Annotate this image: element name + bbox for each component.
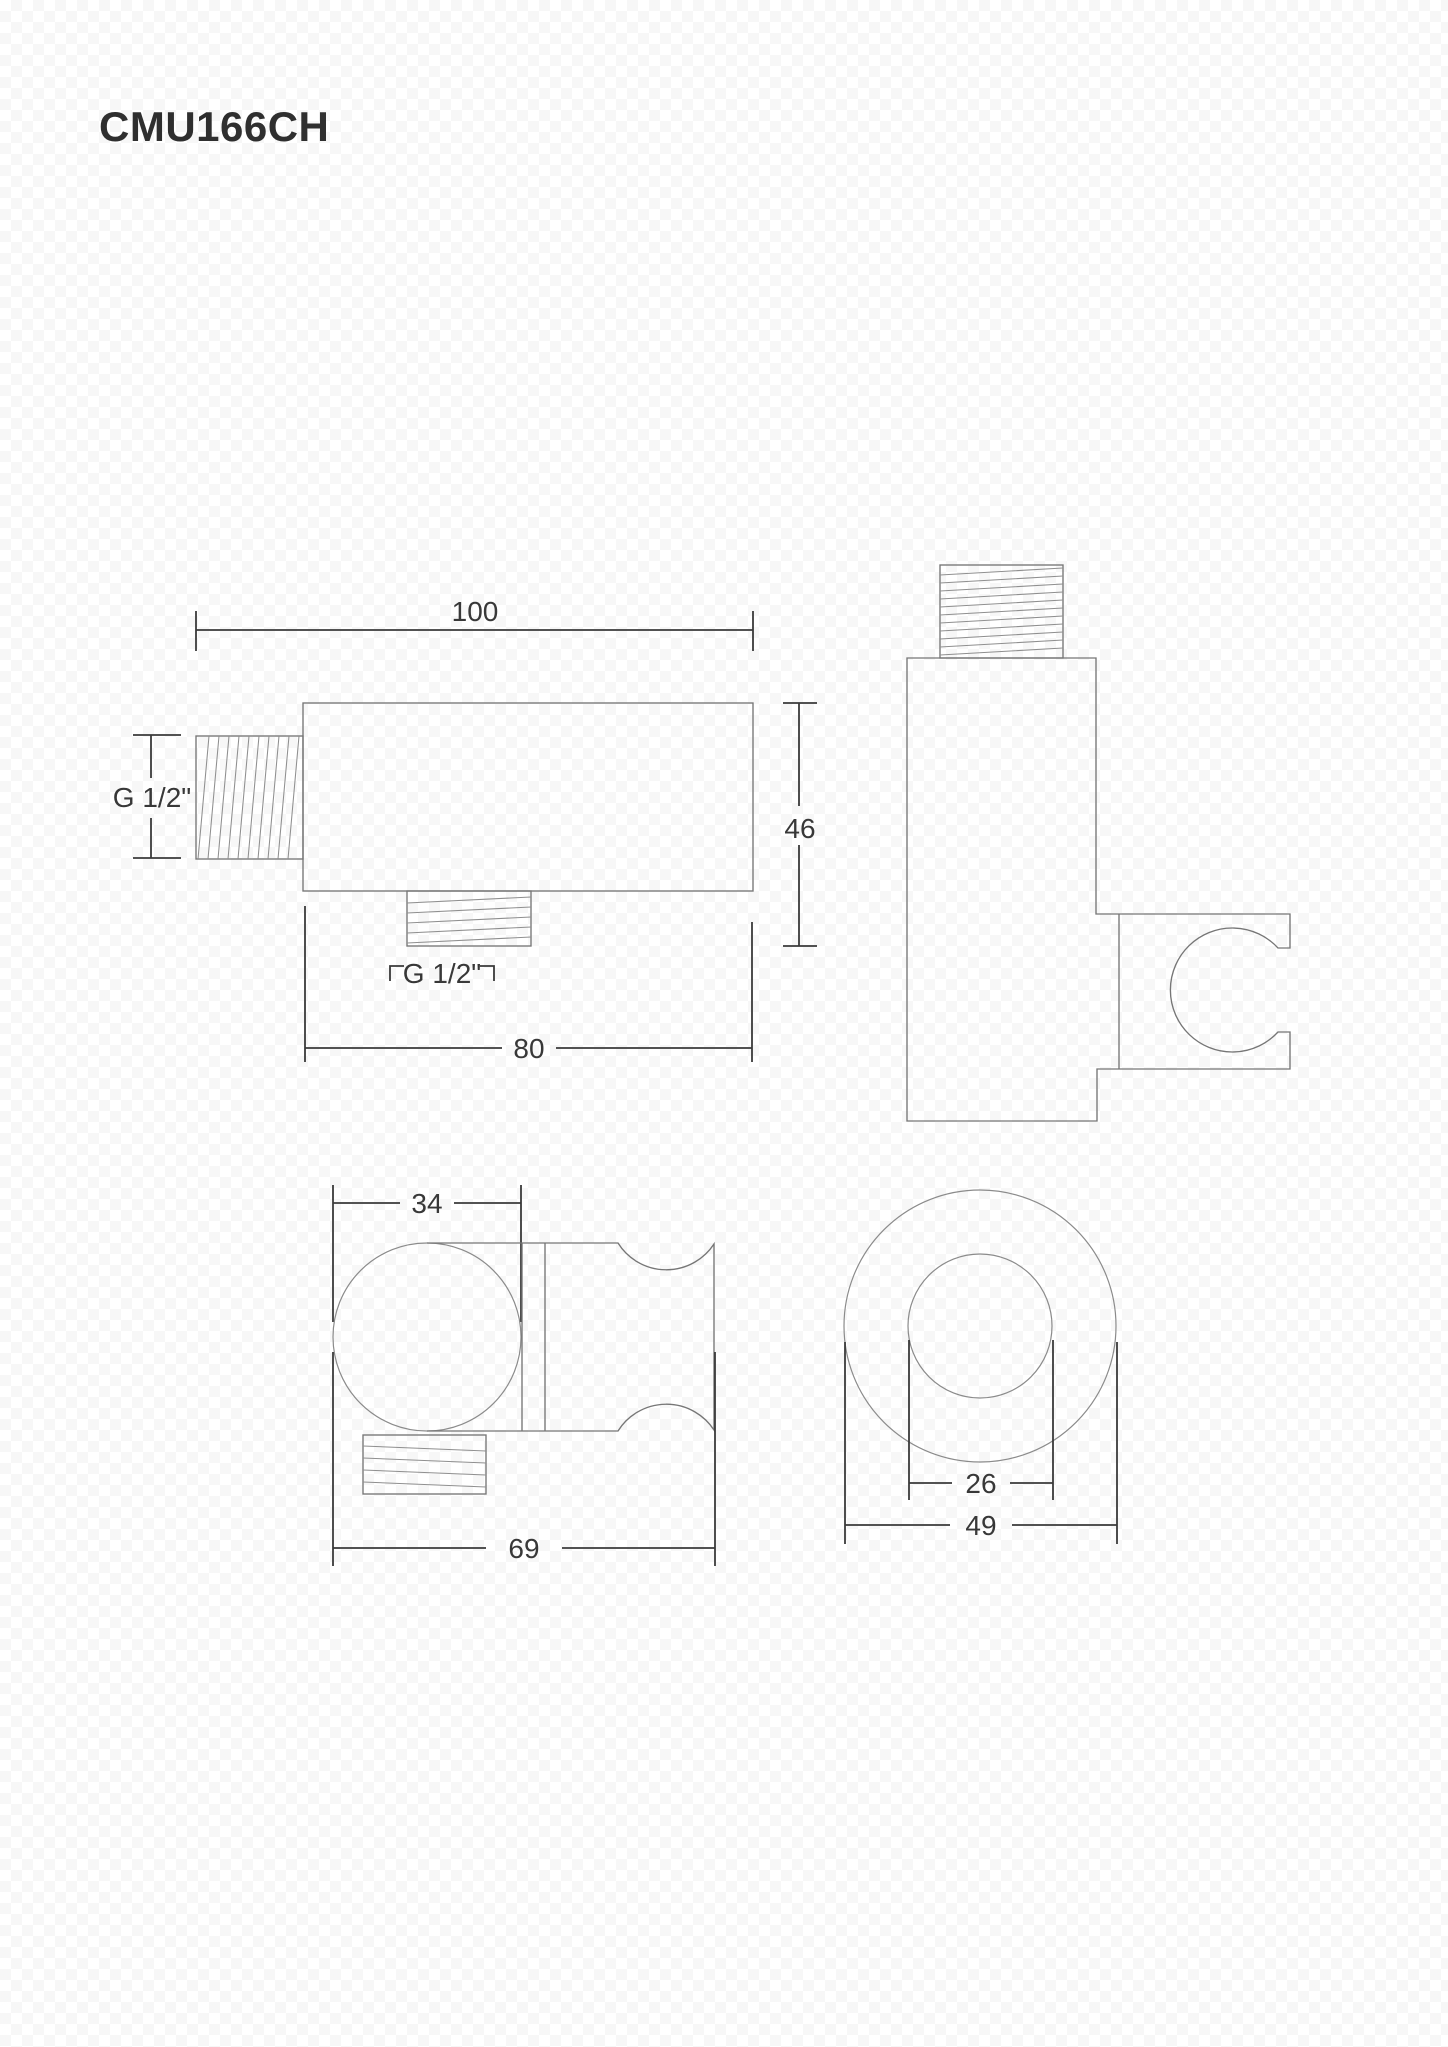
body-circle-plan bbox=[333, 1243, 521, 1431]
outer-circle-end bbox=[844, 1190, 1116, 1462]
side-view bbox=[907, 565, 1290, 1121]
dim-inlet-thread: G 1/2" bbox=[113, 735, 191, 858]
dim-outlet-thread: G 1/2" bbox=[390, 958, 494, 989]
holder-plate-plan bbox=[427, 1243, 714, 1431]
technical-drawing: 100 G 1/2" G 1/2" bbox=[0, 0, 1448, 2047]
inlet-thread-hatch bbox=[198, 736, 299, 859]
dim-34-label: 34 bbox=[411, 1188, 442, 1219]
dim-26-label: 26 bbox=[965, 1468, 996, 1499]
valve-body-front bbox=[303, 703, 753, 891]
front-view: 100 G 1/2" G 1/2" bbox=[113, 596, 817, 1064]
outlet-thread-plan bbox=[363, 1435, 486, 1494]
dim-inner-diameter: 26 bbox=[909, 1340, 1053, 1500]
inner-circle-end bbox=[908, 1254, 1052, 1398]
dim-overall-width: 100 bbox=[196, 596, 753, 651]
drawing-sheet: CMU166CH 100 G 1/2" bbox=[0, 0, 1448, 2047]
dim-body-diameter: 34 bbox=[333, 1185, 521, 1322]
dim-69-label: 69 bbox=[508, 1533, 539, 1564]
end-view: 26 49 bbox=[844, 1190, 1117, 1544]
dim-height: 46 bbox=[783, 703, 817, 946]
dim-80-label: 80 bbox=[513, 1033, 544, 1064]
outlet-thread-plan-hatch bbox=[363, 1446, 486, 1487]
inlet-thread-label: G 1/2" bbox=[113, 782, 191, 813]
top-thread-hatch bbox=[940, 568, 1063, 655]
dim-body-width: 80 bbox=[305, 906, 752, 1064]
dim-outer-diameter: 49 bbox=[845, 1342, 1117, 1544]
dim-49-label: 49 bbox=[965, 1510, 996, 1541]
dim-100-label: 100 bbox=[452, 596, 499, 627]
outlet-thread-label: G 1/2" bbox=[403, 958, 481, 989]
plan-view: 34 69 bbox=[333, 1185, 715, 1566]
body-and-holder-side bbox=[907, 658, 1290, 1121]
outlet-thread-hatch bbox=[407, 897, 531, 943]
dim-46-label: 46 bbox=[784, 813, 815, 844]
